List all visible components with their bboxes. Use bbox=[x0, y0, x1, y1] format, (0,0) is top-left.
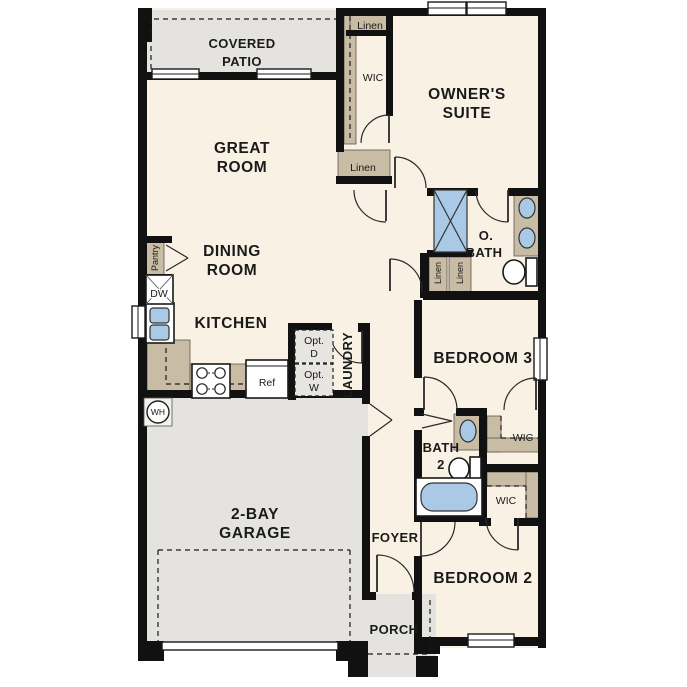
owners-suite-label-2: SUITE bbox=[443, 105, 492, 122]
owners-bath-label-1: O. bbox=[479, 228, 494, 243]
pantry-label: Pantry bbox=[150, 244, 160, 271]
bedroom2-wic-label: WIC bbox=[496, 495, 517, 507]
great-room-label-1: GREAT bbox=[214, 140, 270, 157]
floor-plan: COVERED PATIO GREAT ROOM DINING ROOM KIT… bbox=[0, 0, 687, 687]
bedroom3-wic-label: WIC bbox=[513, 432, 534, 444]
bath2-label-1: BATH bbox=[423, 440, 460, 455]
opt-dryer-label-2: D bbox=[310, 348, 318, 360]
garage-label-1: 2-BAY bbox=[231, 506, 279, 523]
dishwasher-label: DW bbox=[150, 288, 168, 300]
bedroom3-label: BEDROOM 3 bbox=[433, 350, 532, 367]
kitchen-label: KITCHEN bbox=[194, 315, 267, 332]
covered-patio-label-2: PATIO bbox=[222, 54, 262, 69]
kitchen-sink-icon bbox=[146, 303, 174, 343]
dining-room-label-1: DINING bbox=[203, 243, 261, 260]
shower-icon bbox=[434, 190, 467, 252]
hall-linen-a-label: Linen bbox=[433, 262, 443, 284]
opt-washer-label-2: W bbox=[309, 382, 319, 394]
owners-bath-label-2: BATH bbox=[466, 245, 503, 260]
linen-mid-label: Linen bbox=[350, 162, 376, 174]
bedroom2-label: BEDROOM 2 bbox=[433, 570, 532, 587]
bath2-label-2: 2 bbox=[437, 457, 445, 472]
dining-room-label-2: ROOM bbox=[207, 262, 258, 279]
bathtub-icon bbox=[416, 478, 482, 516]
stove-icon bbox=[192, 364, 230, 398]
foyer-label: FOYER bbox=[372, 530, 419, 545]
bath2-sink-icon bbox=[460, 420, 476, 442]
covered-patio-label-1: COVERED bbox=[208, 36, 275, 51]
owners-wic-label: WIC bbox=[363, 72, 384, 84]
garage-label-2: GARAGE bbox=[219, 525, 291, 542]
garage-door bbox=[162, 642, 338, 650]
hall-linen-b-label: Linen bbox=[455, 262, 465, 284]
opt-washer-label-1: Opt. bbox=[304, 369, 324, 381]
owners-toilet-icon bbox=[503, 258, 537, 286]
porch-label: PORCH bbox=[370, 622, 419, 637]
water-heater-label: WH bbox=[151, 407, 165, 417]
owners-suite-label-1: OWNER'S bbox=[428, 86, 506, 103]
laundry-label: LAUNDRY bbox=[340, 332, 355, 398]
linen-top-label: Linen bbox=[357, 20, 383, 32]
kitchen-counter-left bbox=[147, 340, 190, 394]
wic2-shelf-right bbox=[526, 472, 540, 518]
refrigerator-label: Ref bbox=[259, 377, 275, 389]
opt-dryer-label-1: Opt. bbox=[304, 335, 324, 347]
great-room-label-2: ROOM bbox=[217, 159, 268, 176]
